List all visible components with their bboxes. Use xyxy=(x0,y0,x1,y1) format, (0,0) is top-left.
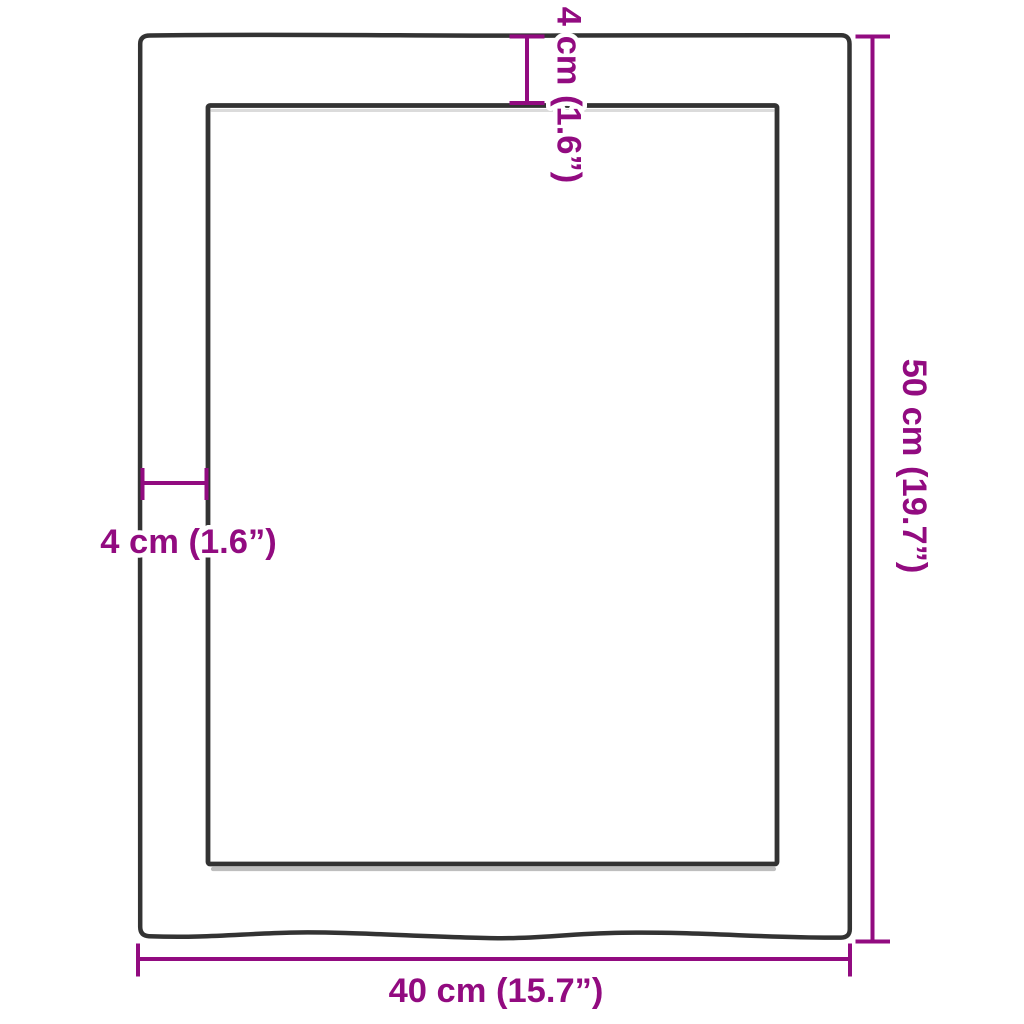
height-dimension: 50 cm (19.7”) xyxy=(856,37,934,942)
board-inner-outline xyxy=(208,106,777,865)
width-label: 40 cm (15.7”) xyxy=(389,972,604,1010)
height-label: 50 cm (19.7”) xyxy=(895,359,933,574)
top-thickness-label: 4 cm (1.6”) xyxy=(550,7,588,183)
dimension-diagram: 4 cm (1.6”) 4 cm (1.6”) 50 cm (19.7”) 40… xyxy=(0,0,1024,1024)
width-dimension: 40 cm (15.7”) xyxy=(138,944,850,1011)
left-thickness-label: 4 cm (1.6”) xyxy=(100,523,276,561)
diagram-canvas: 4 cm (1.6”) 4 cm (1.6”) 50 cm (19.7”) 40… xyxy=(0,0,1024,1024)
